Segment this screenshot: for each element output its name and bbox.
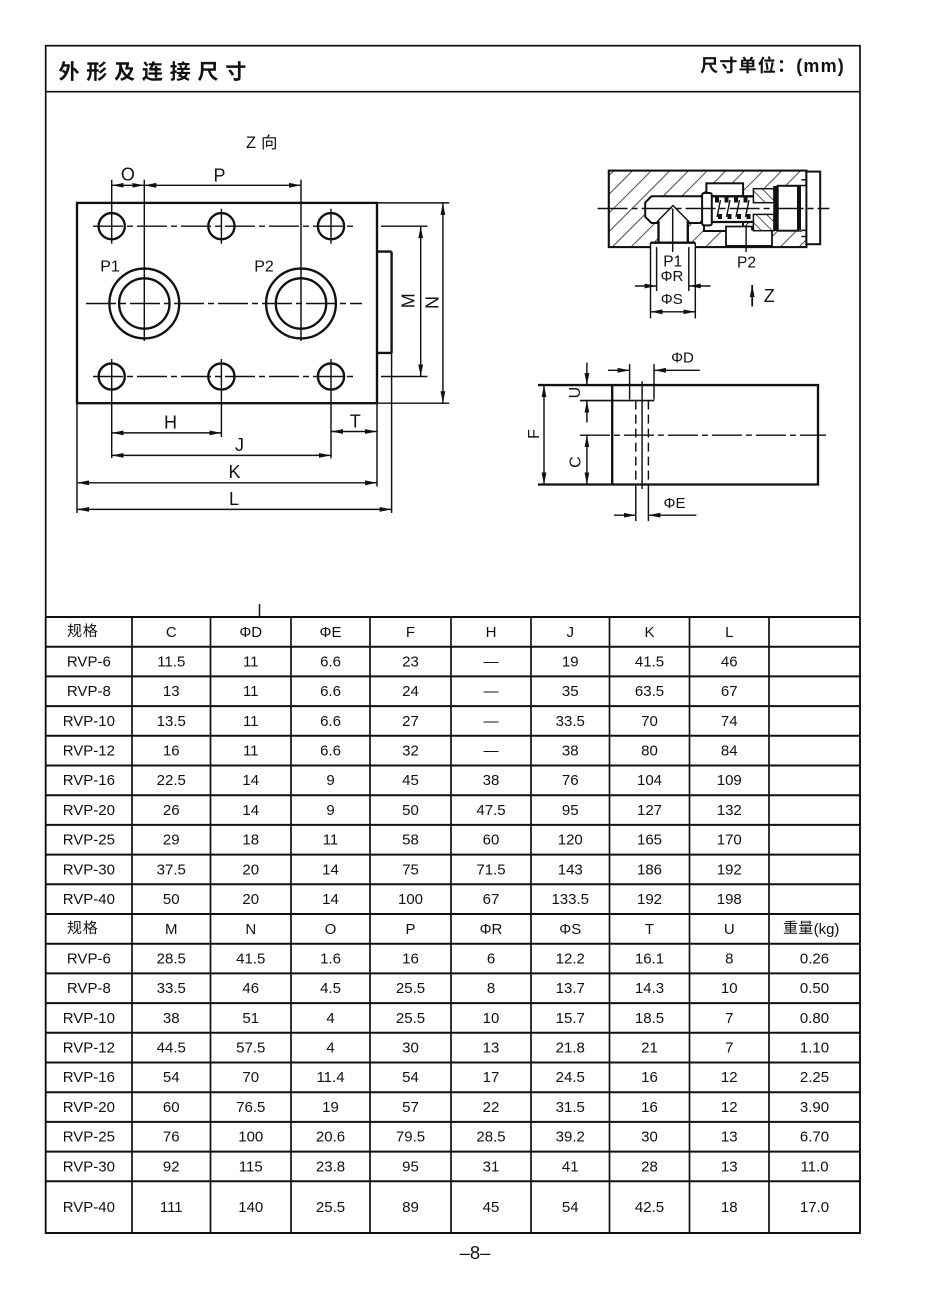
svg-text:T: T — [645, 921, 654, 938]
svg-text:75: 75 — [402, 861, 419, 878]
svg-text:44.5: 44.5 — [157, 1040, 186, 1057]
svg-text:12: 12 — [721, 1099, 738, 1116]
svg-text:22.5: 22.5 — [157, 772, 186, 789]
svg-text:14: 14 — [242, 802, 259, 819]
svg-text:24: 24 — [402, 683, 419, 700]
svg-text:6.6: 6.6 — [320, 683, 341, 700]
svg-text:29: 29 — [163, 832, 180, 849]
svg-text:8: 8 — [487, 980, 495, 997]
svg-text:ΦR: ΦR — [480, 921, 503, 938]
svg-text:13: 13 — [721, 1158, 738, 1175]
svg-text:26: 26 — [163, 802, 180, 819]
svg-text:RVP-30: RVP-30 — [63, 861, 115, 878]
svg-text:RVP-20: RVP-20 — [63, 802, 115, 819]
svg-text:F: F — [526, 429, 543, 439]
svg-text:20: 20 — [242, 861, 259, 878]
svg-text:47.5: 47.5 — [476, 802, 505, 819]
svg-text:U: U — [724, 921, 735, 938]
svg-text:54: 54 — [163, 1069, 180, 1086]
svg-text:C: C — [166, 624, 177, 641]
svg-text:63.5: 63.5 — [635, 683, 664, 700]
svg-text:14: 14 — [322, 891, 339, 908]
svg-text:38: 38 — [483, 772, 500, 789]
svg-text:41: 41 — [562, 1158, 579, 1175]
svg-text:76: 76 — [562, 772, 579, 789]
svg-text:7: 7 — [725, 1010, 733, 1027]
svg-text:ΦS: ΦS — [559, 921, 581, 938]
svg-text:RVP-10: RVP-10 — [63, 713, 115, 730]
svg-text:J: J — [567, 624, 575, 641]
svg-text:28.5: 28.5 — [157, 950, 186, 967]
svg-text:111: 111 — [160, 1199, 183, 1216]
svg-text:6: 6 — [487, 950, 495, 967]
svg-text:14: 14 — [242, 772, 259, 789]
svg-text:F: F — [406, 624, 415, 641]
svg-text:76.5: 76.5 — [236, 1099, 265, 1116]
svg-text:11: 11 — [243, 653, 259, 670]
svg-text:51: 51 — [242, 1010, 259, 1027]
svg-text:60: 60 — [163, 1099, 180, 1116]
svg-text:16: 16 — [163, 743, 180, 760]
svg-text:35: 35 — [562, 683, 579, 700]
svg-text:89: 89 — [402, 1199, 419, 1216]
svg-text:14: 14 — [322, 861, 339, 878]
svg-text:132: 132 — [717, 802, 742, 819]
svg-text:U: U — [567, 387, 584, 399]
svg-text:170: 170 — [717, 832, 742, 849]
svg-text:11: 11 — [323, 832, 339, 849]
svg-text:RVP-20: RVP-20 — [63, 1099, 115, 1116]
svg-text:70: 70 — [242, 1069, 259, 1086]
svg-text:RVP-16: RVP-16 — [63, 772, 115, 789]
svg-text:ΦE: ΦE — [320, 624, 342, 641]
svg-text:12: 12 — [721, 1069, 738, 1086]
svg-text:O: O — [325, 921, 337, 938]
svg-text:95: 95 — [402, 1158, 419, 1175]
svg-text:18.5: 18.5 — [635, 1010, 664, 1027]
svg-text:RVP-16: RVP-16 — [63, 1069, 115, 1086]
svg-text:23.8: 23.8 — [316, 1158, 345, 1175]
svg-text:60: 60 — [483, 832, 500, 849]
svg-text:41.5: 41.5 — [236, 950, 265, 967]
svg-text:45: 45 — [483, 1199, 500, 1216]
svg-text:71.5: 71.5 — [476, 861, 505, 878]
svg-text:M: M — [165, 921, 178, 938]
svg-text:4: 4 — [326, 1040, 334, 1057]
svg-text:33.5: 33.5 — [556, 713, 585, 730]
svg-text:RVP-8: RVP-8 — [67, 980, 111, 997]
svg-text:P2: P2 — [254, 259, 274, 276]
svg-text:143: 143 — [558, 861, 583, 878]
svg-text:10: 10 — [721, 980, 738, 997]
svg-text:9: 9 — [326, 772, 334, 789]
svg-text:17.0: 17.0 — [800, 1199, 829, 1216]
svg-text:11.4: 11.4 — [316, 1069, 344, 1086]
svg-text:ΦD: ΦD — [671, 350, 694, 367]
svg-text:RVP-30: RVP-30 — [63, 1158, 115, 1175]
svg-text:13: 13 — [163, 683, 180, 700]
svg-text:37.5: 37.5 — [157, 861, 186, 878]
svg-text:11.5: 11.5 — [157, 653, 185, 670]
svg-text:95: 95 — [562, 802, 579, 819]
svg-text:RVP-10: RVP-10 — [63, 1010, 115, 1027]
svg-text:42.5: 42.5 — [635, 1199, 664, 1216]
svg-text:20: 20 — [242, 891, 259, 908]
svg-text:54: 54 — [562, 1199, 579, 1216]
svg-text:84: 84 — [721, 743, 738, 760]
svg-text:16.1: 16.1 — [635, 950, 664, 967]
svg-text:27: 27 — [402, 713, 419, 730]
svg-text:RVP-6: RVP-6 — [67, 950, 111, 967]
svg-text:74: 74 — [721, 713, 738, 730]
svg-text:18: 18 — [242, 832, 259, 849]
svg-text:31.5: 31.5 — [556, 1099, 585, 1116]
svg-text:(mm): (mm) — [796, 56, 845, 76]
svg-text:46: 46 — [721, 653, 738, 670]
svg-text:30: 30 — [402, 1040, 419, 1057]
svg-text:140: 140 — [238, 1199, 263, 1216]
svg-text:K: K — [228, 462, 240, 482]
svg-text:–8–: –8– — [460, 1242, 492, 1263]
svg-text:30: 30 — [641, 1129, 658, 1146]
svg-text:0.50: 0.50 — [800, 980, 829, 997]
svg-text:P1: P1 — [100, 259, 120, 276]
svg-text:ΦS: ΦS — [661, 291, 683, 308]
svg-text:28: 28 — [641, 1158, 658, 1175]
svg-text:RVP-12: RVP-12 — [63, 1040, 115, 1057]
svg-text:38: 38 — [163, 1010, 180, 1027]
svg-text:45: 45 — [402, 772, 419, 789]
svg-text:13.5: 13.5 — [157, 713, 186, 730]
svg-text:RVP-8: RVP-8 — [67, 683, 111, 700]
svg-text:13: 13 — [721, 1129, 738, 1146]
svg-text:92: 92 — [163, 1158, 180, 1175]
svg-text:16: 16 — [402, 950, 419, 967]
svg-text:100: 100 — [398, 891, 423, 908]
svg-text:11: 11 — [243, 713, 259, 730]
svg-text:100: 100 — [238, 1129, 263, 1146]
svg-text:18: 18 — [721, 1199, 738, 1216]
svg-text:11: 11 — [243, 683, 259, 700]
svg-text:104: 104 — [637, 772, 662, 789]
svg-text:14.3: 14.3 — [635, 980, 664, 997]
svg-text:15.7: 15.7 — [556, 1010, 585, 1027]
svg-text:P2: P2 — [737, 255, 756, 272]
svg-text:57.5: 57.5 — [236, 1040, 265, 1057]
svg-text:54: 54 — [402, 1069, 419, 1086]
svg-text:RVP-12: RVP-12 — [63, 743, 115, 760]
svg-text:115: 115 — [239, 1158, 263, 1175]
svg-text:6.6: 6.6 — [320, 743, 341, 760]
svg-text:20.6: 20.6 — [316, 1129, 345, 1146]
svg-text:57: 57 — [402, 1099, 419, 1116]
svg-text:16: 16 — [641, 1099, 658, 1116]
svg-text:46: 46 — [242, 980, 259, 997]
svg-text:O: O — [121, 165, 135, 185]
svg-text:—: — — [484, 683, 499, 700]
svg-text:25.5: 25.5 — [316, 1199, 345, 1216]
svg-text:120: 120 — [558, 832, 583, 849]
svg-text:4: 4 — [326, 1010, 334, 1027]
svg-text:L: L — [725, 624, 733, 641]
svg-text:50: 50 — [163, 891, 180, 908]
svg-text:6.6: 6.6 — [320, 713, 341, 730]
svg-text:K: K — [644, 624, 654, 641]
svg-text:Z: Z — [764, 286, 775, 306]
svg-text:76: 76 — [163, 1129, 180, 1146]
svg-text:12.2: 12.2 — [556, 950, 585, 967]
svg-text:7: 7 — [725, 1040, 733, 1057]
svg-text:133.5: 133.5 — [551, 891, 589, 908]
svg-text:19: 19 — [322, 1099, 339, 1116]
svg-text:L: L — [229, 489, 239, 509]
svg-text:ΦR: ΦR — [660, 268, 683, 285]
svg-text:58: 58 — [402, 832, 419, 849]
svg-text:24.5: 24.5 — [556, 1069, 585, 1086]
svg-text:M: M — [399, 293, 419, 308]
svg-text:109: 109 — [717, 772, 742, 789]
svg-text:6.70: 6.70 — [800, 1129, 829, 1146]
svg-text:N: N — [245, 921, 256, 938]
svg-text:70: 70 — [641, 713, 658, 730]
svg-text:21.8: 21.8 — [556, 1040, 585, 1057]
svg-text:38: 38 — [562, 743, 579, 760]
svg-text:192: 192 — [637, 891, 662, 908]
svg-text:186: 186 — [637, 861, 662, 878]
svg-text:80: 80 — [641, 743, 658, 760]
svg-text:13.7: 13.7 — [556, 980, 585, 997]
svg-text:3.90: 3.90 — [800, 1099, 829, 1116]
svg-text:6.6: 6.6 — [320, 653, 341, 670]
svg-text:21: 21 — [641, 1040, 658, 1057]
svg-text:67: 67 — [721, 683, 738, 700]
svg-text:11.0: 11.0 — [800, 1158, 828, 1175]
svg-text:1.6: 1.6 — [320, 950, 341, 967]
svg-text:RVP-25: RVP-25 — [63, 1129, 115, 1146]
svg-text:19: 19 — [562, 653, 579, 670]
svg-text:ΦE: ΦE — [664, 495, 686, 512]
svg-text:79.5: 79.5 — [396, 1129, 425, 1146]
svg-text:T: T — [350, 412, 361, 432]
svg-text:67: 67 — [483, 891, 500, 908]
svg-text:127: 127 — [637, 802, 662, 819]
svg-text:—: — — [484, 743, 499, 760]
svg-text:39.2: 39.2 — [556, 1129, 585, 1146]
svg-text:RVP-40: RVP-40 — [63, 891, 115, 908]
svg-text:10: 10 — [483, 1010, 500, 1027]
svg-text:4.5: 4.5 — [320, 980, 341, 997]
svg-text:0.80: 0.80 — [800, 1010, 829, 1027]
svg-text:17: 17 — [483, 1069, 500, 1086]
svg-text:1.10: 1.10 — [800, 1040, 829, 1057]
svg-text:41.5: 41.5 — [635, 653, 664, 670]
svg-text:—: — — [484, 713, 499, 730]
svg-text:25.5: 25.5 — [396, 980, 425, 997]
svg-text:9: 9 — [326, 802, 334, 819]
svg-text:13: 13 — [483, 1040, 500, 1057]
svg-text:P: P — [213, 166, 225, 186]
svg-text:28.5: 28.5 — [476, 1129, 505, 1146]
svg-text:N: N — [423, 296, 443, 309]
svg-text:H: H — [486, 624, 497, 641]
svg-text:RVP-25: RVP-25 — [63, 832, 115, 849]
svg-text:C: C — [568, 456, 585, 468]
svg-text:31: 31 — [483, 1158, 500, 1175]
svg-text:32: 32 — [402, 743, 419, 760]
svg-text:22: 22 — [483, 1099, 500, 1116]
svg-text:8: 8 — [725, 950, 733, 967]
svg-text:50: 50 — [402, 802, 419, 819]
svg-text:2.25: 2.25 — [800, 1069, 829, 1086]
svg-text:H: H — [164, 413, 177, 433]
svg-text:—: — — [484, 653, 499, 670]
svg-text:11: 11 — [243, 743, 259, 760]
svg-text:Z: Z — [246, 134, 256, 152]
svg-text:165: 165 — [637, 832, 662, 849]
svg-text:(kg): (kg) — [814, 921, 840, 938]
svg-text:J: J — [235, 435, 244, 455]
svg-text:16: 16 — [641, 1069, 658, 1086]
svg-text:ΦD: ΦD — [239, 624, 262, 641]
svg-text:0.26: 0.26 — [800, 950, 829, 967]
svg-text:P: P — [405, 921, 415, 938]
svg-text:192: 192 — [717, 861, 742, 878]
svg-text:198: 198 — [717, 891, 742, 908]
svg-text:RVP-40: RVP-40 — [63, 1199, 115, 1216]
svg-text:33.5: 33.5 — [157, 980, 186, 997]
svg-text:25.5: 25.5 — [396, 1010, 425, 1027]
svg-text:RVP-6: RVP-6 — [67, 653, 111, 670]
svg-text:23: 23 — [402, 653, 419, 670]
